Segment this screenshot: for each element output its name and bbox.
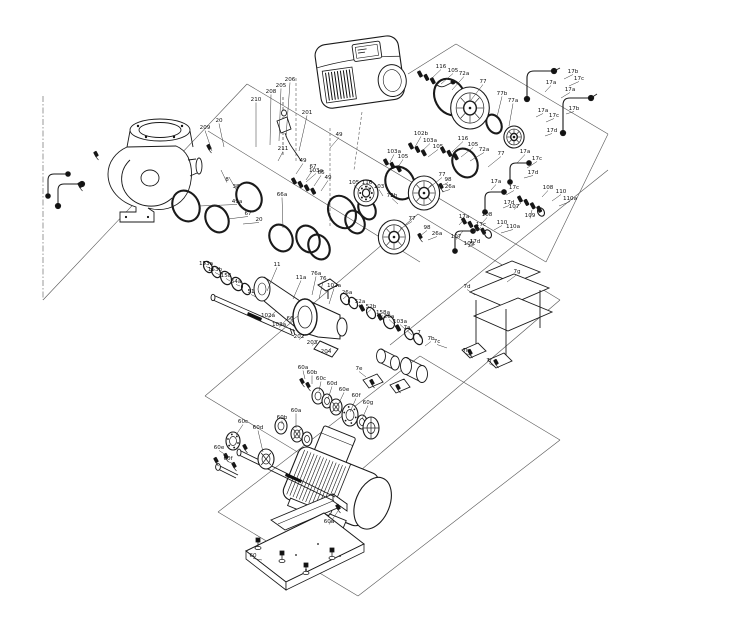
- part-number-label: 98: [444, 177, 452, 183]
- part-number-label: 17c: [549, 113, 559, 119]
- part-number-label: 107: [451, 234, 462, 240]
- part-number-label: 77a: [508, 98, 519, 104]
- part-number-label: 7h: [462, 348, 470, 354]
- part-number-label: 60f: [223, 456, 233, 462]
- part-number-label: 204: [321, 349, 332, 355]
- part-number-label: 60d: [327, 381, 338, 387]
- part-number-label: 110: [556, 189, 567, 195]
- part-number-label: 103a: [309, 168, 323, 174]
- part-number-label: 8: [225, 177, 229, 183]
- part-number-label: 116: [436, 64, 447, 70]
- part-number-label: 77: [479, 79, 487, 85]
- part-number-label: 60e: [214, 445, 225, 451]
- part-number-label: 103a: [272, 322, 286, 328]
- part-number-label: 60a: [291, 408, 302, 414]
- part-number-label: 60e: [339, 387, 350, 393]
- part-number-label: 17d: [547, 128, 558, 134]
- part-number-label: 66a: [277, 192, 288, 198]
- part-number-label: 66: [286, 316, 294, 322]
- part-number-label: 60f: [351, 393, 361, 399]
- part-number-label: 26a: [445, 184, 456, 190]
- part-number-label: 105: [433, 144, 444, 150]
- part-number-label: 17b: [569, 106, 580, 112]
- part-number-label: 105: [448, 68, 459, 74]
- part-number-label: 52a: [355, 299, 366, 305]
- part-number-label: 49: [335, 132, 343, 138]
- part-number-label: 77: [438, 172, 446, 178]
- coupling-guard-tubes: [363, 349, 428, 393]
- part-number-label: 7g: [513, 269, 521, 275]
- part-number-label: 20: [215, 118, 223, 124]
- part-number-label: 203: [307, 340, 318, 346]
- part-number-label: 72a: [479, 147, 490, 153]
- part-number-label: 105: [349, 180, 360, 186]
- baseplate: [246, 513, 364, 590]
- part-number-label: 110a: [563, 196, 577, 202]
- part-number-label: 60c: [316, 376, 326, 382]
- part-number-label: 105: [468, 142, 479, 148]
- part-number-label: 17d: [528, 170, 539, 176]
- part-number-label: 17b: [568, 69, 579, 75]
- part-number-label: 102a: [261, 313, 275, 319]
- part-number-label: 17a: [546, 80, 557, 86]
- part-number-label: 17a: [565, 87, 576, 93]
- part-number-label: 109: [525, 213, 536, 219]
- part-number-label: 202: [294, 334, 305, 340]
- part-number-label: 102a: [327, 283, 341, 289]
- part-number-label: 38: [232, 184, 240, 190]
- insulation-shells: [462, 261, 552, 368]
- impellers-and-seal-discs: [354, 87, 524, 254]
- part-number-label: 49: [299, 158, 307, 164]
- part-number-label: 98: [423, 225, 431, 231]
- part-number-label: 107: [509, 204, 520, 210]
- part-number-label: 60c: [238, 419, 248, 425]
- part-number-label: 209: [200, 125, 211, 131]
- part-number-label: 116: [362, 180, 373, 186]
- part-number-label: 110a: [506, 224, 520, 230]
- part-number-label: 7a: [404, 325, 411, 331]
- part-number-label: 7e: [355, 366, 363, 372]
- part-number-label: 77: [497, 151, 505, 157]
- part-number-label: 17a: [538, 108, 549, 114]
- part-number-label: 208: [266, 89, 277, 95]
- part-number-label: 60g: [363, 400, 374, 406]
- part-number-label: 60: [249, 553, 257, 559]
- part-number-label: 20: [255, 217, 263, 223]
- drain-pipes: [46, 172, 85, 209]
- part-number-label: 103: [374, 184, 385, 190]
- part-number-label: 26a: [432, 231, 443, 237]
- part-number-label: 206: [285, 77, 296, 83]
- part-number-label: 60a: [324, 519, 335, 525]
- part-number-label: 17c: [476, 222, 486, 228]
- part-number-label: 108: [482, 212, 493, 218]
- part-number-label: 26a: [342, 290, 353, 296]
- part-number-label: 7: [417, 330, 421, 336]
- part-number-label: 60d: [253, 425, 264, 431]
- part-number-label: 77: [408, 216, 416, 222]
- pump-housing: [108, 119, 202, 222]
- part-number-label: 17c: [509, 185, 519, 191]
- part-number-label: 76: [319, 276, 327, 282]
- part-number-label: 11: [273, 262, 281, 268]
- part-number-label: 201: [302, 110, 313, 116]
- part-number-label: 51: [247, 289, 255, 295]
- part-number-label: 17a: [520, 149, 531, 155]
- motor-controller-unit: [314, 34, 409, 109]
- part-number-label: 64a: [231, 279, 242, 285]
- part-number-label: 109: [464, 241, 475, 247]
- part-number-label: 105: [398, 154, 409, 160]
- part-number-label: 7d: [463, 284, 471, 290]
- part-number-label: 49: [324, 175, 332, 181]
- part-number-label: 211: [278, 146, 289, 152]
- part-number-label: 72b: [387, 193, 398, 199]
- part-number-label: 108: [543, 185, 554, 191]
- part-number-label: 77b: [497, 91, 508, 97]
- part-number-label: 17a: [459, 214, 470, 220]
- part-number-label: 49a: [232, 199, 243, 205]
- part-number-label: 7c: [434, 339, 441, 345]
- part-number-label: 11a: [296, 275, 307, 281]
- part-number-label: 102b: [414, 131, 429, 137]
- part-number-label: 210: [251, 97, 262, 103]
- part-number-label: 60b: [277, 415, 288, 421]
- part-number-label: 205: [276, 83, 287, 89]
- diagram-canvas: 2092021020820520620121183849a67204949676…: [0, 0, 752, 632]
- part-number-label: 17c: [574, 76, 584, 82]
- controller-display: [352, 41, 382, 62]
- part-number-label: 67: [244, 211, 252, 217]
- part-number-label: 17a: [491, 179, 502, 185]
- exploded-view-diagram: 2092021020820520620121183849a67204949676…: [0, 0, 752, 632]
- part-number-label: 72a: [459, 71, 470, 77]
- part-number-label: 17c: [532, 156, 542, 162]
